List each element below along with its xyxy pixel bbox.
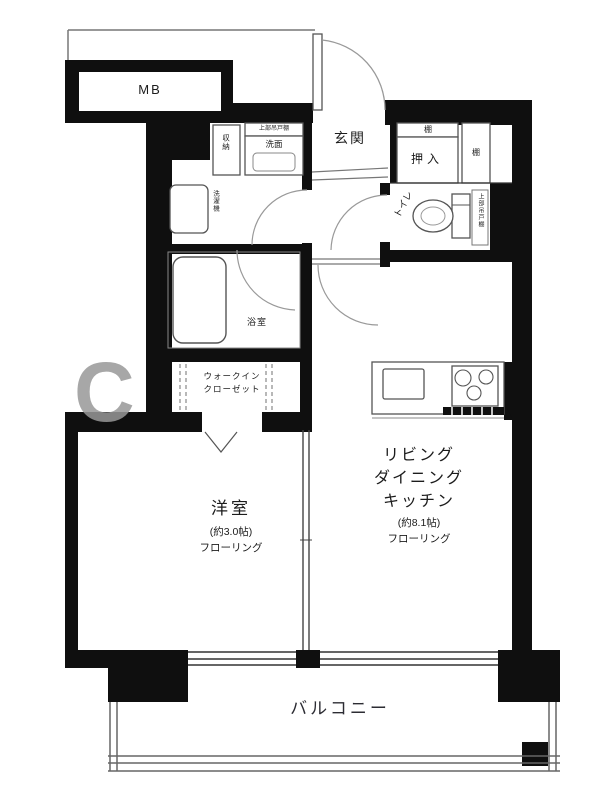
toilet-door-arc — [331, 195, 387, 250]
kitchen-sink — [383, 369, 424, 399]
ldk-label-line2: ダイニング — [374, 471, 464, 487]
front-door — [313, 34, 385, 110]
bath-door-arc — [237, 250, 295, 310]
toilet-cabinet-label: 上部吊戸棚 — [477, 193, 483, 228]
vanity-label: 洗面 — [265, 140, 282, 149]
bathroom — [168, 250, 300, 348]
bath-label: 浴室 — [247, 318, 267, 327]
balcony-label: バルコニー — [290, 700, 390, 717]
entrance-label: 玄関 — [334, 131, 366, 145]
oshiire-closet — [390, 123, 512, 183]
ldk-size-label: (約8.1帖) — [398, 518, 441, 529]
ldk-window — [320, 651, 498, 666]
washer-label: 洗濯機 — [211, 190, 218, 213]
ldk-door-arc — [318, 265, 378, 325]
wic-label-line1: ウォークイン — [203, 372, 260, 381]
washroom-door-arc — [252, 190, 307, 245]
ldk-label-line3: キッチン — [383, 494, 455, 510]
entrance-step-lines — [312, 168, 388, 180]
ldk-label-line1: リビング — [383, 448, 455, 464]
watermark-letter: C — [74, 350, 135, 434]
mb-label: MB — [138, 83, 162, 96]
toilet-fixture — [413, 194, 470, 238]
wic-folding-door-mark — [205, 432, 237, 452]
floor-plan: C — [0, 0, 600, 800]
oshiire-shelf-right-label: 棚 — [472, 149, 480, 157]
washing-machine — [170, 185, 208, 233]
sliding-partition — [300, 430, 312, 650]
kitchen-counter — [372, 362, 504, 418]
storage-label: 収納 — [222, 134, 230, 151]
western-room-window — [188, 651, 296, 666]
vanity-cabinet-label: 上部吊戸棚 — [259, 126, 289, 132]
western-room-label: 洋室 — [211, 500, 251, 517]
corridor-lines — [68, 30, 315, 61]
western-room-floor-label: フローリング — [200, 543, 263, 554]
oshiire-shelf-top-label: 棚 — [424, 126, 432, 134]
wic-label-line2: クローゼット — [203, 385, 260, 394]
bathtub — [173, 257, 226, 343]
ldk-floor-label: フローリング — [388, 534, 451, 545]
oshiire-label: 押入 — [411, 153, 443, 165]
hall-ldk-threshold — [312, 259, 380, 264]
western-room-size-label: (約3.0帖) — [210, 527, 253, 538]
